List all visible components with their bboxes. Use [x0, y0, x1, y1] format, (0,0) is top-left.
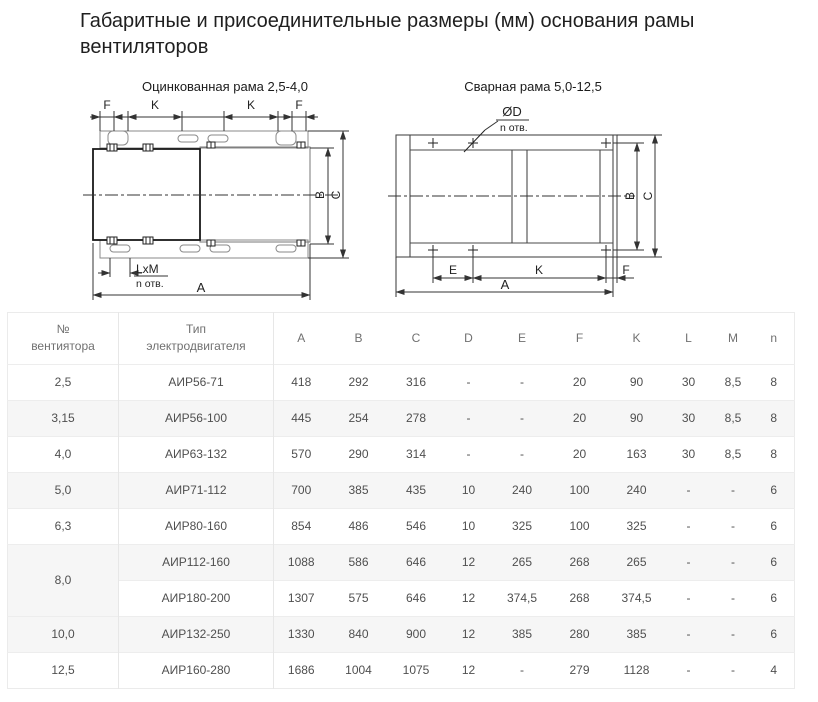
dim-label-a: A: [197, 280, 206, 295]
dimension-cell: 854: [274, 508, 329, 544]
header-cell: K: [609, 313, 665, 365]
dimension-cell: 240: [494, 472, 551, 508]
dimension-cell: -: [494, 436, 551, 472]
dimension-cell: 586: [329, 544, 389, 580]
dimension-cell: 6: [754, 580, 795, 616]
motor-type-cell: АИР80-160: [119, 508, 274, 544]
dimension-cell: 385: [494, 616, 551, 652]
header-cell: L: [665, 313, 713, 365]
dim-label-a: A: [501, 277, 510, 292]
dimension-cell: 12: [444, 616, 494, 652]
dimension-cell: 290: [329, 436, 389, 472]
dimension-cell: 292: [329, 364, 389, 400]
dimension-cell: 314: [389, 436, 444, 472]
motor-type-cell: АИР160-280: [119, 652, 274, 688]
dimension-cell: 30: [665, 400, 713, 436]
dimension-cell: 10: [444, 508, 494, 544]
dim-label-k-left: K: [151, 98, 159, 112]
fan-number-cell: 8,0: [8, 544, 119, 616]
table-row: 10,0АИР132-250133084090012385280385--6: [8, 616, 795, 652]
dimension-cell: 10: [444, 472, 494, 508]
dimension-cell: 8,5: [713, 400, 754, 436]
dimension-cell: 546: [389, 508, 444, 544]
dimension-cell: -: [444, 436, 494, 472]
dimension-cell: 8: [754, 400, 795, 436]
dimension-cell: 445: [274, 400, 329, 436]
fan-number-cell: 2,5: [8, 364, 119, 400]
dimension-cell: 374,5: [609, 580, 665, 616]
dim-label-k-right: K: [247, 98, 255, 112]
dimension-cell: 278: [389, 400, 444, 436]
dimension-cell: 268: [551, 580, 609, 616]
dimension-cell: 385: [609, 616, 665, 652]
dimension-cell: 265: [609, 544, 665, 580]
dimension-cell: 4: [754, 652, 795, 688]
fan-number-cell: 12,5: [8, 652, 119, 688]
table-header: №вентиятораТипэлектродвигателяABCDEFKLMn: [8, 313, 795, 365]
dimension-cell: 316: [389, 364, 444, 400]
table-row: 5,0АИР71-11270038543510240100240--6: [8, 472, 795, 508]
dimension-cell: 418: [274, 364, 329, 400]
header-cell: B: [329, 313, 389, 365]
dim-label-f: F: [622, 263, 629, 277]
dimension-cell: 8,5: [713, 436, 754, 472]
galvanized-frame-drawing: F K K F B C LxM n отв. A: [70, 96, 360, 308]
dimension-cell: 20: [551, 364, 609, 400]
dimension-cell: 6: [754, 472, 795, 508]
dimension-cell: 90: [609, 400, 665, 436]
fan-number-cell: 3,15: [8, 400, 119, 436]
dimension-cell: 280: [551, 616, 609, 652]
dimension-cell: 100: [551, 508, 609, 544]
dimension-cell: -: [713, 472, 754, 508]
dim-label-n-holes: n отв.: [500, 122, 528, 134]
dimension-cell: -: [713, 508, 754, 544]
dimension-cell: -: [494, 652, 551, 688]
dimension-cell: 575: [329, 580, 389, 616]
dimension-cell: -: [665, 616, 713, 652]
dimension-cell: 385: [329, 472, 389, 508]
table-row: 12,5АИР160-28016861004107512-2791128--4: [8, 652, 795, 688]
dimension-cell: 8,5: [713, 364, 754, 400]
motor-type-cell: АИР112-160: [119, 544, 274, 580]
dimension-cell: 20: [551, 400, 609, 436]
dimension-cell: -: [713, 544, 754, 580]
dimension-cell: 30: [665, 436, 713, 472]
mounting-bolts: [107, 142, 305, 246]
page-title-line2: вентиляторов: [80, 34, 780, 60]
dimension-cell: 325: [609, 508, 665, 544]
motor-type-cell: АИР63-132: [119, 436, 274, 472]
dim-label-n-holes: n отв.: [136, 278, 164, 290]
header-row: №вентиятораТипэлектродвигателяABCDEFKLMn: [8, 313, 795, 365]
dimension-cell: 6: [754, 508, 795, 544]
dimension-cell: -: [665, 508, 713, 544]
dimension-cell: 100: [551, 472, 609, 508]
motor-type-cell: АИР56-100: [119, 400, 274, 436]
page-title-line1: Габаритные и присоединительные размеры (…: [80, 8, 780, 34]
table-body: 2,5АИР56-71418292316--2090308,583,15АИР5…: [8, 364, 795, 688]
dimension-cell: 1004: [329, 652, 389, 688]
dimension-cell: -: [494, 364, 551, 400]
dimension-cell: 20: [551, 436, 609, 472]
dimension-cell: -: [713, 652, 754, 688]
dimension-cell: 12: [444, 652, 494, 688]
header-cell: Типэлектродвигателя: [119, 313, 274, 365]
dimension-cell: -: [494, 400, 551, 436]
fan-number-cell: 4,0: [8, 436, 119, 472]
caption-galvanized-frame: Оцинкованная рама 2,5-4,0: [80, 79, 370, 94]
dimension-cell: 90: [609, 364, 665, 400]
dimension-cell: -: [665, 544, 713, 580]
caption-welded-frame: Сварная рама 5,0-12,5: [388, 79, 678, 94]
dim-label-lxm: LxM: [136, 262, 159, 276]
dimension-cell: 900: [389, 616, 444, 652]
dimension-cell: 265: [494, 544, 551, 580]
table-row: 3,15АИР56-100445254278--2090308,58: [8, 400, 795, 436]
dimension-cell: -: [444, 400, 494, 436]
dimension-cell: -: [665, 652, 713, 688]
hole-marks: [428, 130, 611, 255]
header-cell: M: [713, 313, 754, 365]
welded-frame-drawing: ØD n отв. B C E K F A: [388, 96, 678, 308]
dimension-cell: 1330: [274, 616, 329, 652]
dim-label-e: E: [449, 263, 457, 277]
dimension-cell: 163: [609, 436, 665, 472]
dimension-cell: -: [713, 580, 754, 616]
dim-label-c: C: [641, 191, 655, 200]
dimension-cell: 1075: [389, 652, 444, 688]
table-row: АИР180-200130757564612374,5268374,5--6: [8, 580, 795, 616]
dimension-cell: 1128: [609, 652, 665, 688]
dimension-cell: 1088: [274, 544, 329, 580]
table-row: 4,0АИР63-132570290314--20163308,58: [8, 436, 795, 472]
dimension-cell: 12: [444, 580, 494, 616]
dimension-labels: B C E K F A: [449, 191, 655, 292]
dim-label-hole-diameter: ØD: [502, 104, 522, 119]
dim-label-f-left: F: [103, 98, 110, 112]
catalog-page: Габаритные и присоединительные размеры (…: [0, 0, 818, 702]
dimension-cell: -: [713, 616, 754, 652]
dimension-cell: 840: [329, 616, 389, 652]
header-cell: F: [551, 313, 609, 365]
header-cell: A: [274, 313, 329, 365]
header-cell: D: [444, 313, 494, 365]
dimension-cell: 8: [754, 436, 795, 472]
motor-type-cell: АИР56-71: [119, 364, 274, 400]
dim-label-b: B: [313, 191, 327, 199]
dimension-cell: 570: [274, 436, 329, 472]
fan-number-cell: 6,3: [8, 508, 119, 544]
header-cell: C: [389, 313, 444, 365]
dim-label-f-right: F: [295, 98, 302, 112]
dimension-cell: 12: [444, 544, 494, 580]
dimension-cell: 1686: [274, 652, 329, 688]
dimension-cell: 279: [551, 652, 609, 688]
dimension-labels: F K K F B C LxM n отв. A: [103, 98, 343, 295]
dimension-cell: 486: [329, 508, 389, 544]
header-cell: E: [494, 313, 551, 365]
dimension-cell: 30: [665, 364, 713, 400]
dimension-cell: 8: [754, 364, 795, 400]
dimension-cell: 646: [389, 580, 444, 616]
dimension-cell: 435: [389, 472, 444, 508]
fan-number-cell: 5,0: [8, 472, 119, 508]
dimension-cell: -: [665, 472, 713, 508]
table-row: 6,3АИР80-16085448654610325100325--6: [8, 508, 795, 544]
dimension-cell: -: [665, 580, 713, 616]
table-row: 8,0АИР112-160108858664612265268265--6: [8, 544, 795, 580]
dimension-cell: 646: [389, 544, 444, 580]
motor-type-cell: АИР180-200: [119, 580, 274, 616]
dim-label-c: C: [329, 190, 343, 199]
header-cell: n: [754, 313, 795, 365]
header-cell: №вентиятора: [8, 313, 119, 365]
table-row: 2,5АИР56-71418292316--2090308,58: [8, 364, 795, 400]
dimension-cell: 268: [551, 544, 609, 580]
dimension-cell: 240: [609, 472, 665, 508]
dimension-cell: 254: [329, 400, 389, 436]
dimensions-table: №вентиятораТипэлектродвигателяABCDEFKLMn…: [7, 312, 795, 689]
dimension-cell: 374,5: [494, 580, 551, 616]
dimension-cell: 325: [494, 508, 551, 544]
page-title: Габаритные и присоединительные размеры (…: [80, 8, 780, 60]
motor-type-cell: АИР71-112: [119, 472, 274, 508]
dimension-cell: -: [444, 364, 494, 400]
motor-type-cell: АИР132-250: [119, 616, 274, 652]
dimension-cell: 6: [754, 544, 795, 580]
dimension-cell: 700: [274, 472, 329, 508]
dimension-cell: 1307: [274, 580, 329, 616]
fan-number-cell: 10,0: [8, 616, 119, 652]
dimension-cell: 6: [754, 616, 795, 652]
dim-label-k: K: [535, 263, 543, 277]
dim-label-b: B: [623, 192, 637, 200]
